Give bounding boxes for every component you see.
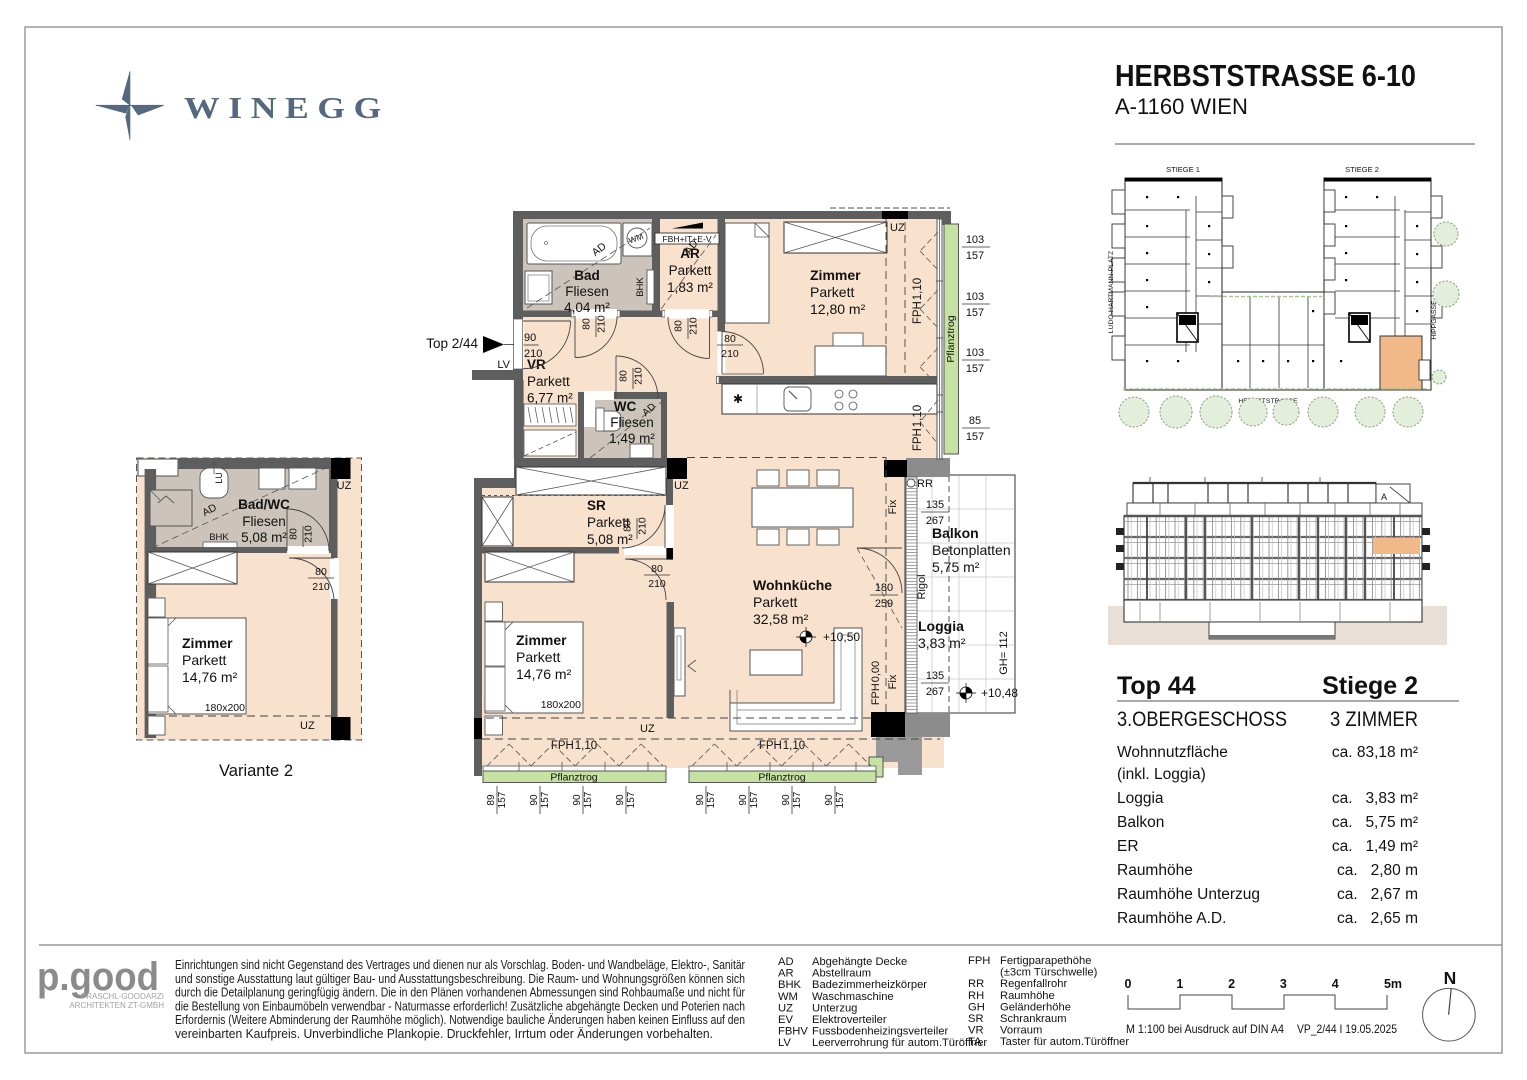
- svg-text:6,77 m²: 6,77 m²: [527, 391, 573, 406]
- svg-text:Parkett: Parkett: [182, 652, 226, 668]
- svg-text:SR: SR: [968, 1013, 984, 1025]
- svg-text:85: 85: [969, 415, 981, 427]
- svg-text:12,80 m²: 12,80 m²: [810, 301, 866, 317]
- svg-text:Taster für autom.Türöffner: Taster für autom.Türöffner: [1000, 1036, 1129, 1048]
- svg-text:Fliesen: Fliesen: [610, 415, 654, 430]
- svg-text:ARCHITEKTEN ZT-GMBH: ARCHITEKTEN ZT-GMBH: [69, 1001, 164, 1010]
- svg-text:Rigol: Rigol: [916, 574, 928, 599]
- svg-text:90: 90: [524, 332, 536, 344]
- svg-text:ca. 2,65 m: ca. 2,65 m: [1337, 910, 1418, 927]
- svg-text:VP_2/44 I 19.05.2025: VP_2/44 I 19.05.2025: [1297, 1022, 1397, 1036]
- svg-text:Abgehängte Decke: Abgehängte Decke: [812, 956, 907, 968]
- svg-text:UZ: UZ: [890, 222, 905, 234]
- svg-text:FPH: FPH: [968, 955, 990, 967]
- svg-text:ca. 2,80 m: ca. 2,80 m: [1337, 862, 1418, 879]
- svg-text:+10,48: +10,48: [981, 686, 1018, 700]
- svg-text:Zimmer: Zimmer: [182, 635, 233, 651]
- svg-text:Balkon: Balkon: [1117, 814, 1164, 831]
- svg-text:durch die Detailplanung gering: durch die Detailplanung geringfügig ände…: [175, 986, 745, 1000]
- svg-text:Zimmer: Zimmer: [810, 267, 861, 283]
- svg-text:Bad: Bad: [574, 268, 600, 283]
- svg-text:259: 259: [875, 598, 893, 610]
- svg-text:Fussbodenheizingsverteiler: Fussbodenheizingsverteiler: [812, 1026, 948, 1038]
- svg-text:90: 90: [738, 794, 749, 806]
- svg-text:FPH 1,10: FPH 1,10: [912, 278, 924, 324]
- svg-text:210: 210: [312, 581, 330, 593]
- svg-text:WC: WC: [614, 399, 637, 414]
- svg-text:267: 267: [926, 515, 944, 527]
- svg-text:Loggia: Loggia: [1117, 790, 1164, 807]
- svg-text:ca. 1,49 m²: ca. 1,49 m²: [1332, 838, 1418, 855]
- svg-text:HIPPGASSE: HIPPGASSE: [1431, 300, 1438, 340]
- svg-text:PRASCHL-GOODARZI: PRASCHL-GOODARZI: [81, 992, 164, 1001]
- svg-text:FBHV: FBHV: [778, 1026, 808, 1038]
- svg-text:A-1160 WIEN: A-1160 WIEN: [1115, 94, 1248, 119]
- svg-text:157: 157: [792, 791, 803, 808]
- svg-text:LU: LU: [214, 472, 224, 484]
- svg-text:4,04 m²: 4,04 m²: [564, 300, 610, 315]
- svg-text:Balkon: Balkon: [932, 525, 979, 541]
- svg-text:Top 44: Top 44: [1117, 672, 1196, 700]
- svg-text:Betonplatten: Betonplatten: [932, 542, 1011, 558]
- svg-text:0: 0: [1125, 977, 1132, 991]
- svg-text:80: 80: [673, 320, 685, 332]
- svg-text:Vorraum: Vorraum: [1000, 1025, 1042, 1037]
- svg-text:103: 103: [966, 291, 984, 303]
- svg-text:RH: RH: [968, 990, 984, 1002]
- svg-text:(inkl. Loggia): (inkl. Loggia): [1117, 766, 1206, 783]
- svg-text:103: 103: [966, 234, 984, 246]
- svg-text:BHK: BHK: [209, 532, 229, 543]
- svg-text:VR: VR: [968, 1025, 984, 1037]
- svg-text:LV: LV: [497, 359, 510, 371]
- svg-text:210: 210: [303, 525, 315, 543]
- svg-text:STIEGE 1: STIEGE 1: [1166, 165, 1200, 174]
- svg-text:GH= 112: GH= 112: [998, 631, 1010, 675]
- svg-text:Raumhöhe A.D.: Raumhöhe A.D.: [1117, 910, 1226, 927]
- svg-text:Parkett: Parkett: [810, 284, 854, 300]
- svg-text:UZ: UZ: [337, 480, 352, 492]
- svg-text:Abstellraum: Abstellraum: [812, 968, 871, 980]
- svg-text:210: 210: [633, 367, 645, 385]
- svg-text:ca. 5,75 m²: ca. 5,75 m²: [1332, 814, 1418, 831]
- svg-text:UZ: UZ: [778, 1002, 793, 1014]
- svg-text:Leerverrohrung für autom.Türöf: Leerverrohrung für autom.Türöffner: [812, 1037, 987, 1049]
- svg-text:AD: AD: [778, 956, 794, 968]
- svg-text:210: 210: [688, 317, 700, 335]
- svg-text:Pflanztrog: Pflanztrog: [550, 772, 597, 784]
- svg-text:5,75 m²: 5,75 m²: [932, 559, 980, 575]
- svg-text:Raumhöhe: Raumhöhe: [1000, 990, 1055, 1002]
- svg-text:Top 2/44: Top 2/44: [426, 336, 478, 351]
- svg-text:FPH 1,10: FPH 1,10: [912, 405, 924, 451]
- svg-text:80: 80: [622, 520, 634, 532]
- svg-text:(±3cm Türschwelle): (±3cm Türschwelle): [1000, 967, 1098, 979]
- svg-text:210: 210: [596, 315, 608, 333]
- svg-text:Einrichtungen sind nicht Gegen: Einrichtungen sind nicht Gegenstand des …: [175, 958, 745, 972]
- svg-text:N: N: [1444, 968, 1457, 988]
- svg-text:ca. 83,18 m²: ca. 83,18 m²: [1332, 744, 1418, 761]
- svg-text:M 1:100 bei Ausdruck auf DIN A: M 1:100 bei Ausdruck auf DIN A4: [1126, 1022, 1284, 1036]
- svg-text:267: 267: [926, 686, 944, 698]
- svg-text:157: 157: [966, 250, 984, 262]
- svg-text:157: 157: [497, 791, 508, 808]
- svg-text:Parkett: Parkett: [753, 594, 797, 610]
- svg-text:Badezimmerheizkörper: Badezimmerheizkörper: [812, 979, 927, 991]
- svg-text:157: 157: [966, 363, 984, 375]
- svg-text:EV: EV: [778, 1014, 793, 1026]
- svg-text:5,08 m²: 5,08 m²: [241, 530, 287, 545]
- svg-text:1,49 m²: 1,49 m²: [609, 431, 655, 446]
- svg-text:RR: RR: [917, 478, 933, 490]
- svg-text:UZ: UZ: [674, 480, 689, 492]
- svg-text:und sonstige Ausstattung laut: und sonstige Ausstattung laut gültiger B…: [175, 972, 745, 986]
- svg-text:TA: TA: [968, 1036, 982, 1048]
- svg-text:vereinbarten Kaufpreis. Unverb: vereinbarten Kaufpreis. Unverbindliche P…: [175, 1027, 713, 1041]
- svg-text:Parkett: Parkett: [516, 649, 560, 665]
- svg-text:157: 157: [966, 307, 984, 319]
- svg-text:80: 80: [315, 566, 327, 578]
- svg-text:90: 90: [572, 794, 583, 806]
- svg-text:AR: AR: [680, 246, 700, 261]
- svg-text:LV: LV: [778, 1037, 791, 1049]
- svg-text:3.OBERGESCHOSS: 3.OBERGESCHOSS: [1117, 708, 1287, 731]
- svg-text:90: 90: [781, 794, 792, 806]
- svg-text:GH: GH: [968, 1001, 985, 1013]
- svg-text:90: 90: [615, 794, 626, 806]
- svg-text:80: 80: [724, 333, 736, 345]
- svg-text:Fliesen: Fliesen: [565, 284, 609, 299]
- svg-text:ca. 2,67 m: ca. 2,67 m: [1337, 886, 1418, 903]
- svg-text:3,83 m²: 3,83 m²: [918, 635, 966, 651]
- svg-text:WM: WM: [778, 991, 798, 1003]
- svg-text:3: 3: [1280, 977, 1287, 991]
- svg-text:1: 1: [1176, 977, 1183, 991]
- svg-text:Variante 2: Variante 2: [219, 762, 293, 780]
- svg-text:157: 157: [583, 791, 594, 808]
- svg-text:14,76 m²: 14,76 m²: [182, 669, 238, 685]
- svg-text:AR: AR: [778, 968, 794, 980]
- svg-text:180: 180: [875, 582, 893, 594]
- svg-text:LUDO-HARTMANN-PLATZ: LUDO-HARTMANN-PLATZ: [1108, 251, 1115, 333]
- svg-text:157: 157: [706, 791, 717, 808]
- svg-text:80: 80: [288, 528, 300, 540]
- svg-text:die Bestellung von Einbaumöbel: die Bestellung von Einbaumöbeln verwendb…: [175, 999, 745, 1013]
- svg-text:Parkett: Parkett: [669, 263, 712, 278]
- svg-text:✱: ✱: [733, 392, 743, 406]
- svg-text:Unterzug: Unterzug: [812, 1002, 857, 1014]
- svg-text:A: A: [1381, 492, 1387, 502]
- svg-text:180x200: 180x200: [541, 699, 581, 711]
- svg-text:80: 80: [651, 563, 663, 575]
- svg-text:Raumhöhe Unterzug: Raumhöhe Unterzug: [1117, 886, 1260, 903]
- svg-text:Schrankraum: Schrankraum: [1000, 1013, 1067, 1025]
- svg-text:Bad/WC: Bad/WC: [238, 497, 290, 512]
- svg-text:Pflanztrog: Pflanztrog: [945, 315, 957, 362]
- svg-text:WINEGG: WINEGG: [184, 90, 390, 125]
- svg-text:32,58 m²: 32,58 m²: [753, 611, 809, 627]
- svg-text:UZ: UZ: [640, 723, 655, 735]
- svg-text:RR: RR: [968, 978, 984, 990]
- svg-text:210: 210: [721, 348, 739, 360]
- svg-text:FPH 0,00: FPH 0,00: [870, 661, 882, 705]
- svg-text:BHK: BHK: [635, 277, 646, 297]
- svg-text:2: 2: [1228, 977, 1235, 991]
- svg-text:135: 135: [926, 499, 944, 511]
- svg-text:90: 90: [529, 794, 540, 806]
- svg-text:5,08 m²: 5,08 m²: [587, 532, 633, 547]
- svg-text:90: 90: [695, 794, 706, 806]
- svg-text:Fix: Fix: [887, 674, 899, 689]
- svg-text:ER: ER: [1117, 838, 1139, 855]
- svg-text:Fliesen: Fliesen: [242, 514, 286, 529]
- svg-text:Fix: Fix: [887, 499, 899, 514]
- svg-text:Waschmaschine: Waschmaschine: [812, 991, 894, 1003]
- svg-text:80: 80: [581, 318, 593, 330]
- svg-text:FPH 1,10: FPH 1,10: [759, 740, 805, 752]
- svg-text:3 ZIMMER: 3 ZIMMER: [1330, 708, 1418, 731]
- svg-text:FPH 1,10: FPH 1,10: [551, 740, 597, 752]
- svg-text:Raumhöhe: Raumhöhe: [1117, 862, 1193, 879]
- svg-text:Zimmer: Zimmer: [516, 632, 567, 648]
- svg-text:Regenfallrohr: Regenfallrohr: [1000, 978, 1067, 990]
- svg-text:80: 80: [618, 370, 630, 382]
- svg-text:Fertigparapethöhe: Fertigparapethöhe: [1000, 955, 1091, 967]
- svg-text:157: 157: [626, 791, 637, 808]
- svg-text:103: 103: [966, 347, 984, 359]
- svg-text:Loggia: Loggia: [918, 618, 964, 634]
- svg-text:HERBSTSTRASSE 6-10: HERBSTSTRASSE 6-10: [1115, 59, 1416, 93]
- svg-text:135: 135: [926, 670, 944, 682]
- svg-text:1,83 m²: 1,83 m²: [667, 280, 713, 295]
- svg-text:89: 89: [486, 794, 497, 806]
- svg-text:157: 157: [835, 791, 846, 808]
- svg-text:BHK: BHK: [778, 979, 802, 991]
- svg-text:+10,50: +10,50: [823, 630, 860, 644]
- svg-text:Wohnküche: Wohnküche: [753, 577, 832, 593]
- svg-text:Erfordernis (Weitere Abminderu: Erfordernis (Weitere Abminderung der Rau…: [175, 1013, 745, 1027]
- svg-text:157: 157: [540, 791, 551, 808]
- svg-text:UZ: UZ: [300, 720, 315, 732]
- svg-text:ca. 3,83 m²: ca. 3,83 m²: [1332, 790, 1418, 807]
- svg-text:180x200: 180x200: [205, 702, 245, 714]
- svg-text:157: 157: [966, 431, 984, 443]
- svg-text:STIEGE 2: STIEGE 2: [1345, 165, 1379, 174]
- svg-text:14,76 m²: 14,76 m²: [516, 666, 572, 682]
- svg-text:4: 4: [1332, 977, 1339, 991]
- svg-text:Wohnnutzfläche: Wohnnutzfläche: [1117, 744, 1228, 761]
- svg-text:90: 90: [824, 794, 835, 806]
- svg-text:210: 210: [648, 578, 666, 590]
- svg-text:5m: 5m: [1384, 977, 1402, 991]
- svg-text:Stiege 2: Stiege 2: [1322, 672, 1418, 700]
- svg-text:Pflanztrog: Pflanztrog: [758, 772, 805, 784]
- svg-text:210: 210: [637, 517, 649, 535]
- svg-text:Elektroverteiler: Elektroverteiler: [812, 1014, 887, 1026]
- svg-text:210: 210: [524, 348, 542, 360]
- svg-text:SR: SR: [587, 498, 606, 513]
- svg-text:157: 157: [749, 791, 760, 808]
- svg-text:Parkett: Parkett: [527, 374, 570, 389]
- svg-text:Geländerhöhe: Geländerhöhe: [1000, 1001, 1071, 1013]
